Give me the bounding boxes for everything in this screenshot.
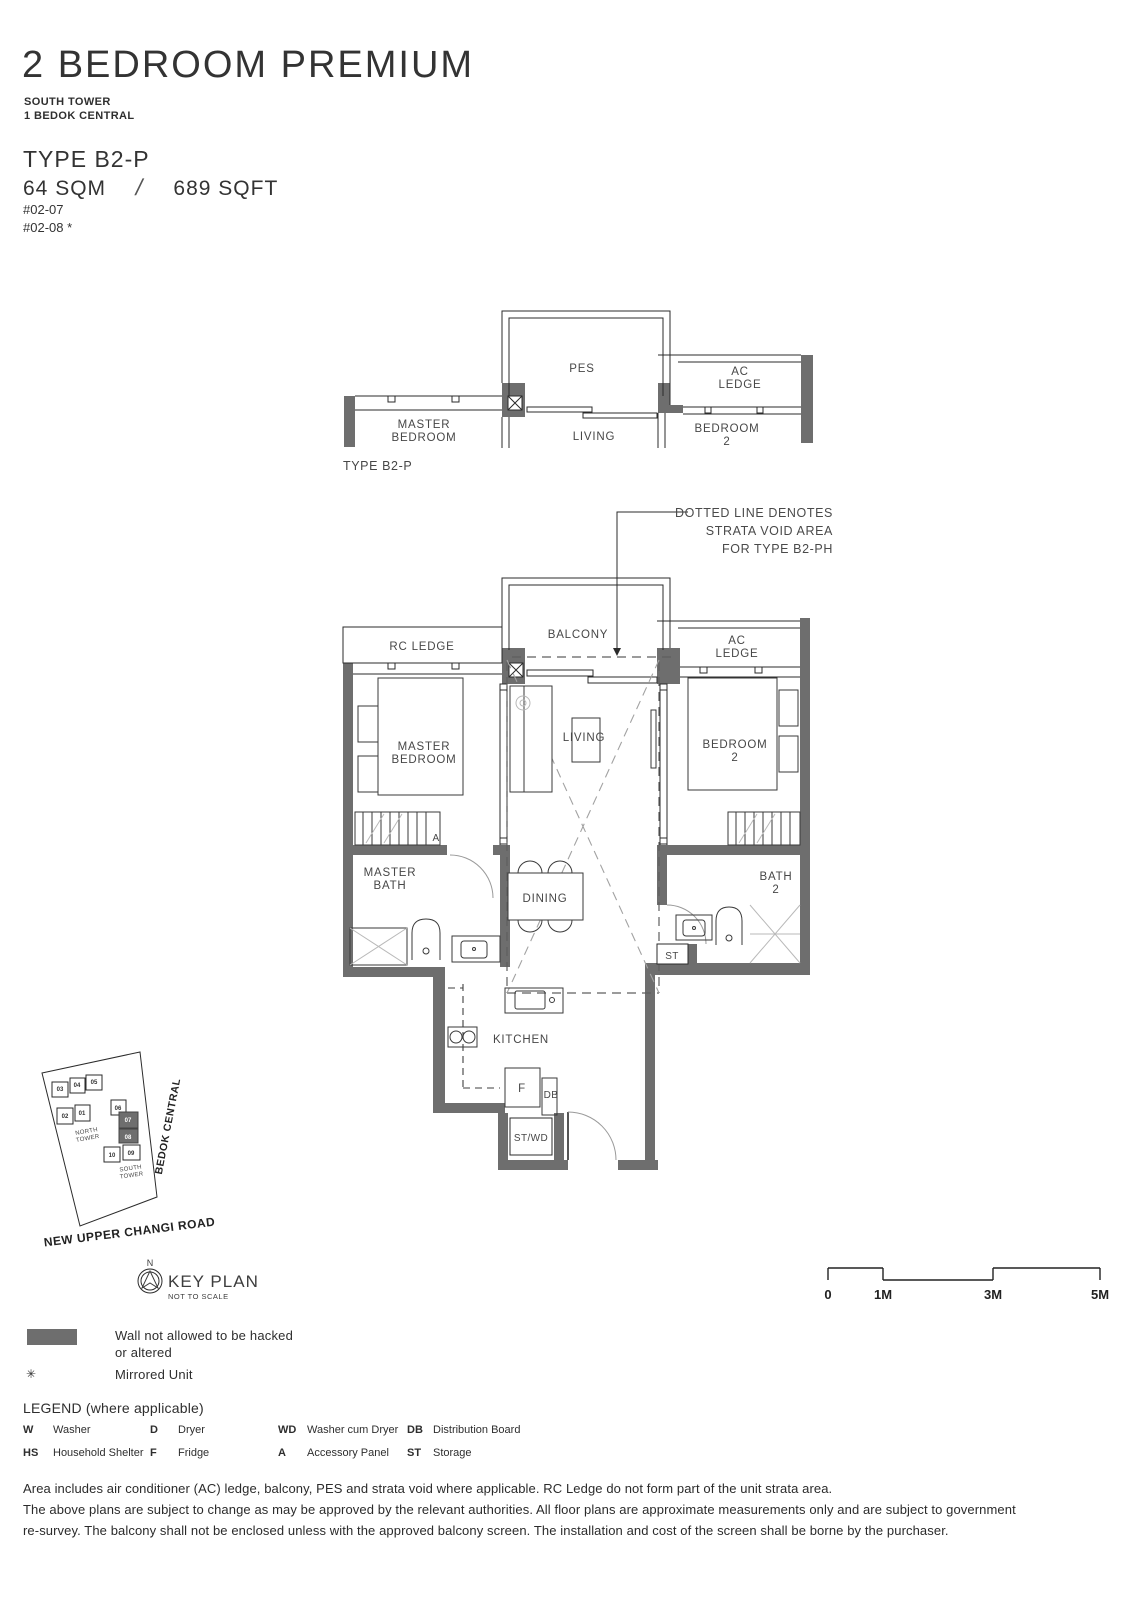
scale-tick-label: 1M — [874, 1287, 892, 1302]
north-compass-icon — [138, 1269, 162, 1293]
road-label: NEW UPPER CHANGI ROAD — [43, 1215, 216, 1250]
scale-bar: 0 1M 3M 5M — [824, 1268, 1109, 1302]
ac-ledge-label: AC — [728, 635, 746, 647]
street-label: BEDOK CENTRAL — [153, 1077, 183, 1175]
partition-master-living — [500, 684, 507, 845]
sliding-door-panel — [527, 407, 592, 412]
legend-label: Dryer — [178, 1424, 205, 1436]
annotation-line2: STRATA VOID AREA — [706, 524, 833, 538]
south-tower-label: SOUTH TOWER — [119, 1164, 145, 1180]
legend-abbr: ST — [407, 1447, 421, 1459]
schematic-bedroom2-label: 2 — [723, 436, 730, 448]
leader-arrow — [613, 648, 621, 656]
mirror-symbol: ✳ — [26, 1367, 36, 1381]
schematic-living-label: LIVING — [573, 431, 616, 443]
sink-counter — [505, 988, 563, 1013]
partition-living-bedroom2 — [660, 684, 667, 845]
legend-abbr: W — [23, 1424, 33, 1436]
door-jamb — [500, 684, 507, 690]
window-mullion — [388, 663, 395, 669]
window-mullion — [705, 407, 711, 413]
master-bedroom-label: BEDROOM — [391, 754, 456, 766]
legend-label: Storage — [433, 1447, 472, 1459]
fridge-label: F — [518, 1083, 526, 1095]
bedroom2-window-band — [680, 667, 800, 677]
disclaimer-line: The above plans are subject to change as… — [23, 1502, 1016, 1517]
pillow — [779, 690, 798, 726]
schematic-master-bedroom-label: MASTER — [398, 419, 451, 431]
leader-line — [617, 512, 688, 650]
unit-stack-label: 06 — [115, 1106, 122, 1112]
disclaimer-line: Area includes air conditioner (AC) ledge… — [23, 1481, 832, 1496]
legend-abbr: A — [278, 1447, 286, 1459]
bedroom2-label: BEDROOM — [702, 739, 767, 751]
key-plan: 03 04 05 02 01 06 07 08 10 09 NORTH TOWE… — [42, 1052, 259, 1301]
pillow — [358, 706, 378, 742]
unit-stack-label: 05 — [91, 1080, 98, 1086]
entry-door — [568, 1112, 616, 1160]
drawings-canvas: PES AC LEDGE MASTER BEDROOM LIVING BEDRO… — [0, 0, 1135, 1606]
door-swing — [667, 905, 706, 944]
master-bath-label: BATH — [373, 880, 406, 892]
master-bed — [358, 678, 463, 795]
north-tower-label: NORTH TOWER — [74, 1127, 100, 1144]
db-label: DB — [544, 1090, 559, 1101]
accessory-panel-label: A — [432, 833, 439, 844]
schematic-ac-ledge-label: AC — [731, 366, 749, 378]
ac-ledge-outline — [657, 621, 800, 628]
scale-bar-line — [828, 1268, 1100, 1280]
door-swing — [450, 855, 493, 898]
main-floorplan: BALCONY RC LEDGE AC LEDGE MASTER BEDROOM… — [343, 578, 810, 1170]
window-band — [355, 396, 502, 410]
bath2-label: 2 — [772, 884, 779, 896]
pes-outline-inner — [509, 318, 663, 396]
ac-ledge-outline — [658, 355, 801, 362]
door-jamb — [500, 838, 507, 844]
disclaimer-line: re-survey. The balcony shall not be encl… — [23, 1523, 949, 1538]
pes-outline — [502, 311, 670, 405]
legend-abbr: D — [150, 1424, 158, 1436]
unit-stack-label: 02 — [62, 1114, 69, 1120]
master-bath-label: MASTER — [364, 867, 417, 879]
unit-stack-label: 04 — [74, 1083, 81, 1089]
bedroom2-bed — [688, 678, 798, 790]
unit-stack-label: 09 — [128, 1151, 135, 1157]
keyplan-title: KEY PLAN — [168, 1272, 259, 1291]
door-jamb — [660, 684, 667, 690]
bedroom2-label: 2 — [731, 752, 738, 764]
unit-stack-label-highlighted: 08 — [125, 1135, 132, 1141]
schematic-wall — [670, 405, 683, 413]
ac-ledge-label: LEDGE — [716, 648, 759, 660]
legend-label: Washer — [53, 1424, 91, 1436]
legend-label: Household Shelter — [53, 1447, 144, 1459]
sliding-door-panel — [583, 413, 657, 418]
legend-abbr: WD — [278, 1424, 296, 1436]
wall-swatch — [27, 1329, 77, 1345]
sliding-door-panel — [527, 670, 593, 676]
balcony-label: BALCONY — [548, 629, 609, 641]
unit-stack-label-highlighted: 07 — [125, 1118, 132, 1124]
window-mullion — [700, 667, 707, 673]
floorplan-brochure-page: 2 BEDROOM PREMIUM SOUTH TOWER 1 BEDOK CE… — [0, 0, 1135, 1606]
mirror-note: Mirrored Unit — [115, 1367, 193, 1382]
annotation-line3: FOR TYPE B2-PH — [722, 542, 833, 556]
legend-title: LEGEND (where applicable) — [23, 1400, 204, 1416]
master-window-band — [353, 663, 502, 674]
unit-stack-label: 03 — [57, 1087, 64, 1093]
legend-abbr: F — [150, 1447, 157, 1459]
legend-label: Accessory Panel — [307, 1447, 389, 1459]
living-label: LIVING — [563, 732, 606, 744]
rc-ledge-label: RC LEDGE — [389, 641, 454, 653]
bedroom2-wardrobe — [728, 812, 800, 845]
window-mullion — [452, 663, 459, 669]
toilet — [412, 919, 440, 960]
schematic-pes-label: PES — [569, 363, 594, 375]
unit-stack-label: 10 — [109, 1153, 116, 1159]
legend-label: Distribution Board — [433, 1424, 520, 1436]
unit-stack-label: 01 — [79, 1111, 86, 1117]
bath2-label: BATH — [759, 871, 792, 883]
tv-console — [651, 710, 656, 768]
schematic-bedroom2-label: BEDROOM — [694, 423, 759, 435]
window-band — [683, 407, 801, 414]
sliding-door-panel — [588, 677, 657, 683]
window-mullion — [755, 667, 762, 673]
window-mullion — [757, 407, 763, 413]
wall-note: or altered — [115, 1345, 172, 1360]
master-bedroom-label: MASTER — [398, 741, 451, 753]
dining-chairs — [518, 861, 572, 873]
shower — [350, 928, 407, 965]
legend-label: Washer cum Dryer — [307, 1424, 398, 1436]
legend-label: Fridge — [178, 1447, 209, 1459]
dining-label: DINING — [522, 893, 567, 905]
scale-tick-label: 0 — [824, 1287, 831, 1302]
vanity-sink — [676, 915, 712, 940]
schematic-wall — [801, 355, 813, 443]
toilet — [716, 907, 742, 945]
shower — [750, 905, 800, 963]
schematic-plan: PES AC LEDGE MASTER BEDROOM LIVING BEDRO… — [343, 311, 813, 473]
schematic-master-bedroom-label: BEDROOM — [391, 432, 456, 444]
schematic-wall — [658, 383, 670, 413]
dining-chairs — [518, 920, 572, 932]
legend-abbr: DB — [407, 1424, 423, 1436]
vanity-sink — [452, 936, 500, 962]
scale-tick-label: 5M — [1091, 1287, 1109, 1302]
door-swing — [568, 1112, 616, 1160]
storage-label: ST — [665, 951, 679, 962]
pillow — [779, 736, 798, 772]
schematic-wall — [344, 396, 355, 447]
door-jamb — [660, 838, 667, 844]
window-mullion — [388, 396, 395, 402]
window-mullion — [452, 396, 459, 402]
schematic-caption: TYPE B2-P — [343, 459, 412, 473]
pillow — [358, 756, 378, 792]
legend-abbr: HS — [23, 1447, 38, 1459]
wall-note: Wall not allowed to be hacked — [115, 1328, 293, 1343]
sofa — [510, 686, 552, 792]
annotation-line1: DOTTED LINE DENOTES — [675, 506, 833, 520]
north-label: N — [147, 1258, 154, 1268]
keyplan-buildings: 03 04 05 02 01 06 07 08 10 09 — [52, 1075, 140, 1162]
kitchen-label: KITCHEN — [493, 1034, 549, 1046]
schematic-ac-ledge-label: LEDGE — [719, 379, 762, 391]
master-wardrobe — [355, 812, 440, 845]
keyplan-subtitle: NOT TO SCALE — [168, 1292, 229, 1301]
stwd-label: ST/WD — [514, 1133, 548, 1144]
scale-tick-label: 3M — [984, 1287, 1002, 1302]
